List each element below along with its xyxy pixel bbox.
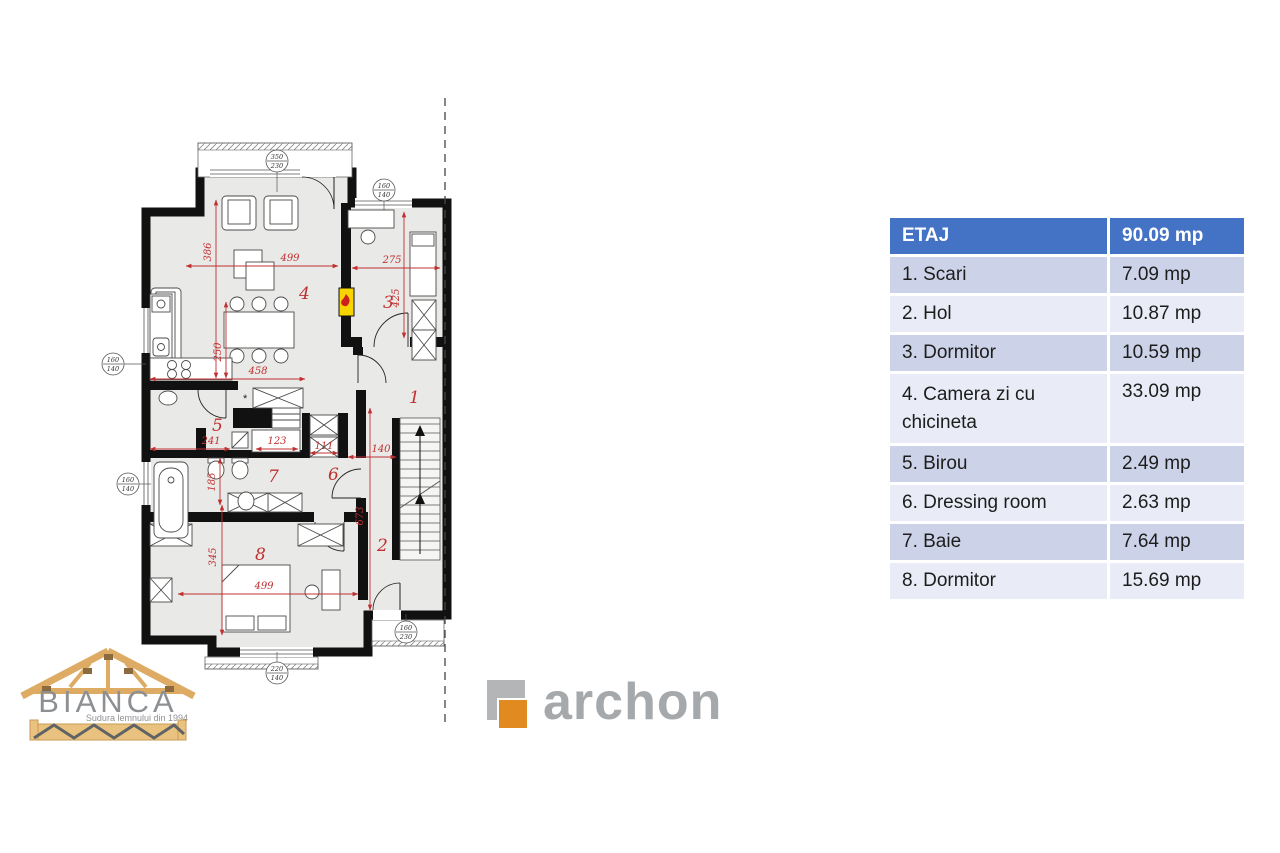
room-label-1: 1	[409, 388, 420, 408]
table-row: 7. Baie 7.64 mp	[890, 524, 1244, 560]
dim-stair-hall-height: 673	[355, 506, 366, 525]
row-label: 1. Scari	[890, 257, 1107, 293]
table-header-value: 90.09 mp	[1110, 218, 1244, 254]
dim-living-height: 386	[203, 242, 214, 262]
dim-dining-width: 250	[213, 342, 224, 363]
dim-hall5-width: 241	[200, 436, 220, 447]
room-label-8: 8	[255, 545, 266, 565]
table-row: 3. Dormitor 10.59 mp	[890, 335, 1244, 371]
kitchen-symbol: *	[243, 393, 248, 405]
bianca-logo: BIANCA Sudura lemnului din 1994	[20, 646, 196, 748]
room-label-4: 4	[298, 284, 310, 304]
archon-logo: archon	[487, 678, 722, 732]
window-kitchen-left	[141, 308, 151, 353]
row-label: 5. Birou	[890, 446, 1107, 482]
svg-text:350: 350	[271, 153, 283, 161]
svg-text:160: 160	[122, 476, 134, 484]
dim-kitchen-width: 458	[247, 366, 267, 377]
dim-bath-height: 185	[207, 472, 218, 491]
row-value: 2.63 mp	[1110, 485, 1244, 521]
bianca-tagline: Sudura lemnului din 1994	[86, 713, 188, 723]
row-value: 7.09 mp	[1110, 257, 1244, 293]
svg-text:160: 160	[107, 356, 119, 364]
room-label-3: 3	[383, 293, 394, 313]
room-label-6: 6	[328, 465, 339, 485]
svg-text:230: 230	[270, 162, 283, 170]
table-row: 6. Dressing room 2.63 mp	[890, 485, 1244, 521]
table-header-label: ETAJ	[890, 218, 1107, 254]
dim-hall-width: 140	[371, 444, 391, 455]
floorplan: * 386	[80, 90, 470, 740]
truss-beam-icon	[30, 720, 186, 740]
window-terrace-glazing	[210, 167, 302, 177]
table-row: 8. Dormitor 15.69 mp	[890, 563, 1244, 599]
dim-closet-width: 123	[267, 436, 286, 447]
row-label: 8. Dormitor	[890, 563, 1107, 599]
dim-room3-width: 275	[381, 255, 401, 266]
row-value: 7.64 mp	[1110, 524, 1244, 560]
svg-text:220: 220	[270, 665, 283, 673]
archon-wordmark: archon	[543, 678, 722, 726]
svg-text:140: 140	[122, 485, 134, 493]
window-room8-bottom	[240, 647, 313, 657]
table-row: 1. Scari 7.09 mp	[890, 257, 1244, 293]
dim-room8-width: 499	[253, 581, 274, 592]
row-value: 15.69 mp	[1110, 563, 1244, 599]
svg-text:230: 230	[399, 633, 412, 641]
row-label: 3. Dormitor	[890, 335, 1107, 371]
row-label: 2. Hol	[890, 296, 1107, 332]
dim-living-width: 499	[279, 253, 300, 264]
row-value: 33.09 mp	[1110, 374, 1244, 443]
svg-text:140: 140	[378, 191, 390, 199]
table-row: 4. Camera zi cu chicineta 33.09 mp	[890, 374, 1244, 443]
row-value: 2.49 mp	[1110, 446, 1244, 482]
fireplace	[339, 288, 354, 316]
room-label-5: 5	[212, 416, 223, 436]
row-value: 10.87 mp	[1110, 296, 1244, 332]
window-bath-left	[141, 462, 151, 505]
row-value: 10.59 mp	[1110, 335, 1244, 371]
window-tag: 160 140	[102, 353, 146, 375]
dim-dressing-width: 111	[314, 441, 333, 452]
row-label: 4. Camera zi cu chicineta	[890, 374, 1107, 443]
terrace-bottom-left	[205, 657, 318, 669]
room-label-2: 2	[376, 536, 388, 556]
svg-text:140: 140	[271, 674, 283, 682]
table-row: 2. Hol 10.87 mp	[890, 296, 1244, 332]
room-label-7: 7	[268, 467, 279, 487]
row-label: 6. Dressing room	[890, 485, 1107, 521]
staircase	[400, 418, 440, 560]
orange-square-icon	[497, 698, 527, 728]
svg-text:160: 160	[378, 182, 390, 190]
table-row: 5. Birou 2.49 mp	[890, 446, 1244, 482]
svg-text:140: 140	[107, 365, 119, 373]
dim-room8-height: 345	[208, 547, 219, 566]
table-header-row: ETAJ 90.09 mp	[890, 218, 1244, 254]
svg-text:160: 160	[400, 624, 412, 632]
area-legend-table: ETAJ 90.09 mp 1. Scari 7.09 mp 2. Hol 10…	[890, 218, 1244, 602]
archon-mark-icon	[487, 678, 531, 728]
row-label: 7. Baie	[890, 524, 1107, 560]
